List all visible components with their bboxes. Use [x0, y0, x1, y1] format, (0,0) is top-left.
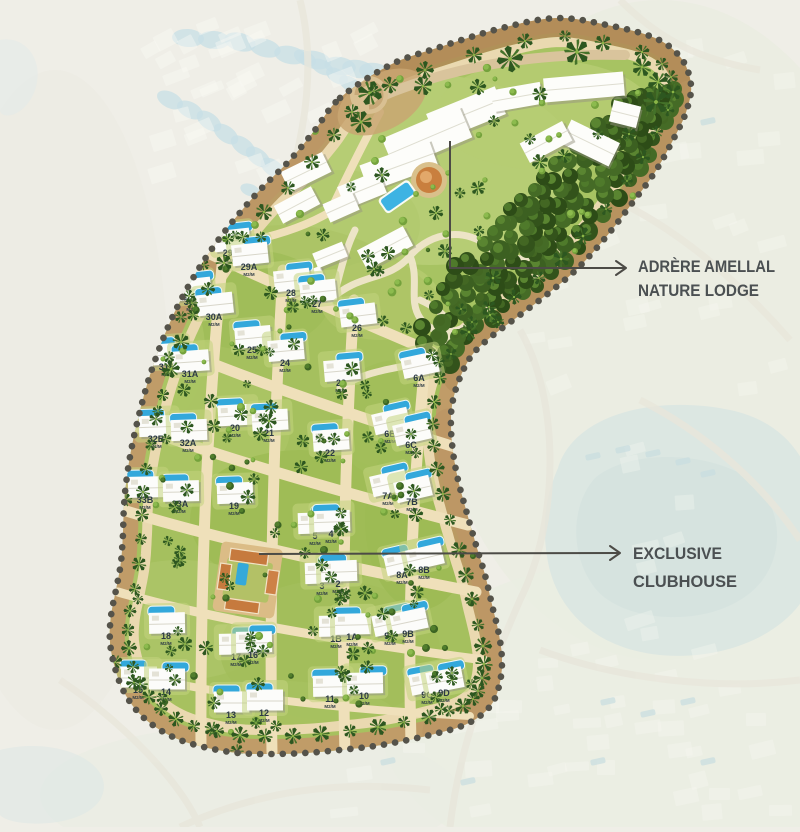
svg-text:M2/M: M2/M	[330, 644, 342, 649]
svg-text:M2/M: M2/M	[402, 639, 414, 644]
svg-text:8B: 8B	[418, 565, 430, 575]
svg-text:11: 11	[325, 694, 335, 704]
svg-text:28: 28	[286, 288, 296, 298]
svg-text:M2/M: M2/M	[325, 539, 337, 544]
svg-text:7B: 7B	[406, 497, 418, 507]
svg-text:10: 10	[359, 691, 369, 701]
svg-text:M2/M: M2/M	[225, 720, 237, 725]
svg-text:M2/M: M2/M	[382, 501, 394, 506]
svg-text:M2/M: M2/M	[243, 272, 255, 277]
svg-text:M2/M: M2/M	[182, 448, 194, 453]
svg-text:2: 2	[335, 579, 340, 589]
svg-text:19: 19	[229, 501, 239, 511]
svg-text:M2/M: M2/M	[324, 458, 336, 463]
svg-text:M2/M: M2/M	[228, 511, 240, 516]
svg-text:26: 26	[352, 323, 362, 333]
svg-text:M2/M: M2/M	[184, 379, 196, 384]
svg-text:29A: 29A	[241, 262, 258, 272]
svg-text:32A: 32A	[180, 438, 197, 448]
svg-text:18: 18	[161, 631, 171, 641]
svg-text:6A: 6A	[413, 373, 425, 383]
svg-text:M2/M: M2/M	[230, 662, 242, 667]
svg-text:M2/M: M2/M	[246, 355, 258, 360]
svg-text:M2/M: M2/M	[406, 507, 418, 512]
svg-text:M2/M: M2/M	[309, 541, 321, 546]
svg-text:ADRÈRE AMELLAL: ADRÈRE AMELLAL	[638, 257, 775, 276]
svg-text:M2/M: M2/M	[346, 642, 358, 647]
svg-text:M2/M: M2/M	[160, 641, 172, 646]
svg-text:M2/M: M2/M	[279, 368, 291, 373]
svg-text:30A: 30A	[206, 312, 223, 322]
svg-text:M2/M: M2/M	[418, 575, 430, 580]
svg-text:4: 4	[328, 529, 333, 539]
svg-text:CLUBHOUSE: CLUBHOUSE	[633, 573, 737, 591]
svg-text:EXCLUSIVE: EXCLUSIVE	[633, 545, 722, 563]
svg-text:M2/M: M2/M	[263, 438, 275, 443]
svg-text:M2/M: M2/M	[324, 704, 336, 709]
svg-text:M2/M: M2/M	[311, 309, 323, 314]
svg-text:M2/M: M2/M	[384, 641, 396, 646]
svg-text:M2/M: M2/M	[208, 322, 220, 327]
svg-text:M2/M: M2/M	[351, 333, 363, 338]
svg-text:M2/M: M2/M	[421, 700, 433, 705]
svg-text:24: 24	[280, 358, 290, 368]
svg-text:12: 12	[259, 708, 269, 718]
svg-text:M2/M: M2/M	[413, 383, 425, 388]
svg-text:NATURE LODGE: NATURE LODGE	[638, 282, 759, 300]
svg-text:31A: 31A	[182, 369, 199, 379]
svg-text:9B: 9B	[402, 629, 414, 639]
svg-text:M2/M: M2/M	[396, 580, 408, 585]
svg-text:13: 13	[226, 710, 236, 720]
